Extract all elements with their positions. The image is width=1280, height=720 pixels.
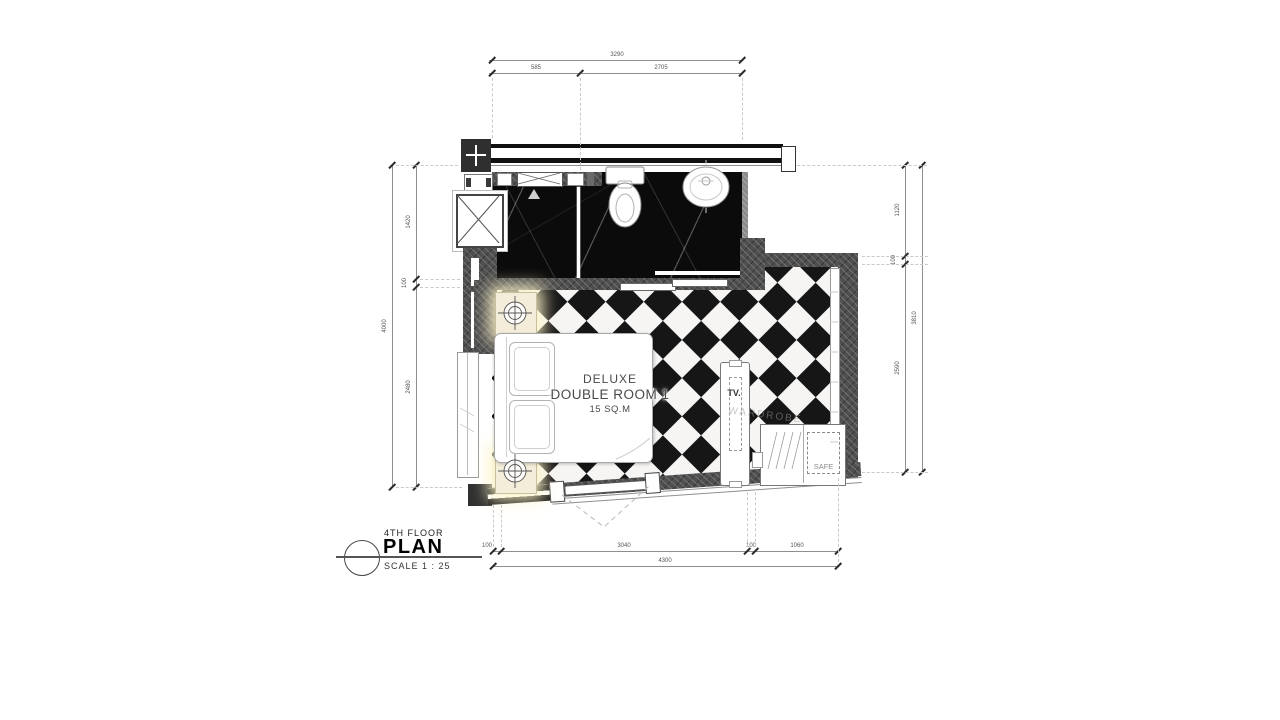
dim-label-right-total: 3810 (912, 311, 918, 324)
curtain-ticks (830, 292, 838, 442)
window-ticks (460, 408, 474, 432)
floor-plan-canvas: { "title_block": { "floor_label": "4TH F… (0, 0, 1280, 720)
dim-label-left-seg2: 100 (402, 278, 408, 288)
dim-label-bottom-total: 4300 (658, 558, 671, 564)
dim-label-left-total: 4000 (382, 319, 388, 332)
extension-line (396, 165, 458, 166)
dim-line (416, 165, 417, 487)
dim-label-bottom-seg4: 1060 (790, 543, 803, 549)
dim-label-right-seg3: 2590 (895, 361, 901, 374)
door-swing-arc (562, 486, 649, 527)
title-circle-icon (344, 540, 380, 576)
shaft-x-icon (458, 196, 499, 243)
centerline (742, 78, 743, 140)
dim-line (922, 165, 923, 472)
centerline (747, 492, 748, 547)
dim-label-left-seg3: 2480 (406, 380, 412, 393)
centerline (755, 492, 756, 547)
basin-fixture (683, 160, 729, 214)
centerline (492, 78, 493, 138)
dim-line (489, 60, 743, 61)
dim-label-top-seg1: 585 (531, 65, 541, 71)
extension-line (420, 287, 460, 288)
extension-line (797, 165, 927, 166)
centerline (580, 78, 581, 170)
dim-line (493, 551, 838, 552)
dim-label-left-seg1: 1420 (406, 215, 412, 228)
blanket-fold (616, 438, 650, 459)
centerline (838, 478, 839, 562)
extension-line (862, 256, 928, 257)
window-x-icon (518, 173, 560, 184)
dim-label-top-total: 3290 (610, 52, 623, 58)
extension-line (862, 472, 928, 473)
wardrobe-hanging-lines (768, 432, 801, 469)
lamp-icon (498, 296, 532, 330)
title-block: 4TH FLOOR PLAN SCALE 1 : 25 (336, 524, 536, 580)
extension-line (396, 487, 462, 488)
toilet-fixture (606, 167, 644, 227)
dim-label-bottom-seg2: 3040 (617, 543, 630, 549)
lamp-icon (498, 454, 532, 488)
detail-overlay (0, 0, 1280, 720)
dim-line (489, 73, 743, 74)
dim-line (493, 566, 838, 567)
extension-line (862, 264, 928, 265)
dim-label-right-seg1: 1120 (895, 204, 901, 217)
dim-line (392, 165, 393, 487)
title-scale-label: SCALE 1 : 25 (384, 561, 451, 571)
dim-label-top-seg2: 2705 (654, 65, 667, 71)
extension-line (420, 279, 460, 280)
title-rule (336, 556, 482, 558)
dim-line (905, 165, 906, 472)
